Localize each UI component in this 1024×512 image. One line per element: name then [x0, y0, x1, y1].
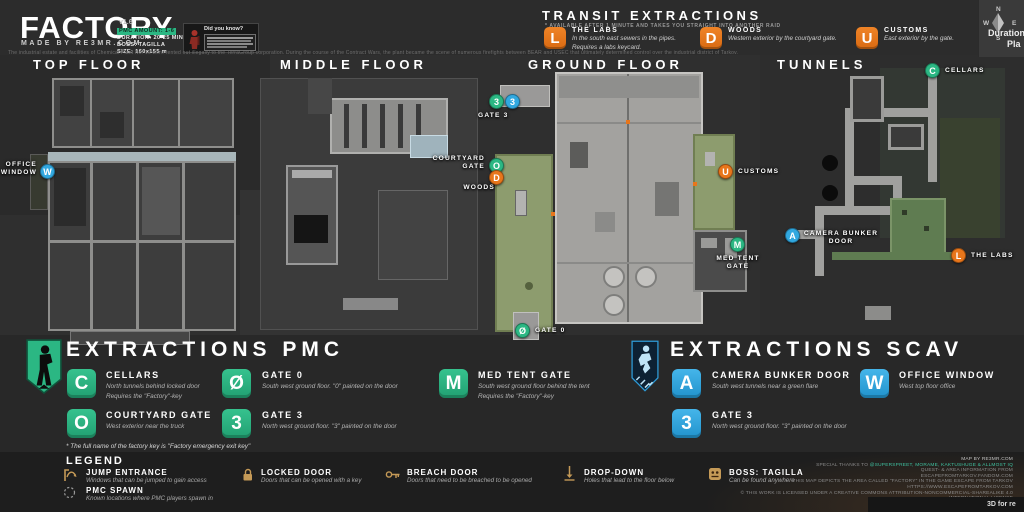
locked-door-icon [240, 467, 255, 482]
pmc-gate0-desc: South west ground floor. "0" painted on … [262, 382, 398, 392]
map-ground-floor [495, 62, 765, 334]
map-room [142, 167, 180, 235]
pmc-med-tent-desc: South west ground floor behind the tent … [478, 382, 590, 402]
marker-cellars-label: CELLARS [945, 67, 985, 75]
map-detail [924, 226, 929, 231]
map-description: The industrial estate and facilities of … [8, 50, 1018, 56]
map-wall [343, 298, 398, 310]
scav-emblem [631, 340, 659, 392]
map-room [54, 168, 86, 226]
drop-down-icon [563, 466, 576, 481]
transit-item-labs: L [544, 27, 566, 49]
corner-cutoff-text: 3D for re [987, 501, 1016, 508]
pmc-cellars-desc: North tunnels behind locked door Require… [106, 382, 200, 402]
pmc-cellars-name: CELLARS [106, 370, 160, 380]
pmc-courtyard-desc: West exterior near the truck [106, 422, 184, 432]
map-tunnel [815, 206, 902, 215]
breach-door-icon [385, 468, 401, 481]
map-door-marker [551, 212, 555, 216]
marker-med-tent-gate[interactable]: M [730, 237, 745, 252]
stat-pmc-amount: PMC AMOUNT: 1-6 [117, 28, 176, 35]
map-corridor [48, 152, 236, 161]
transit-item-customs: U [856, 27, 878, 49]
transit-extractions-title: TRANSIT EXTRACTIONS [542, 8, 762, 23]
transit-customs-desc: East exterior by the gate. [884, 35, 954, 44]
marker-woods-transit[interactable]: D [489, 170, 504, 185]
extractions-scav-title: EXTRACTIONS SCAV [670, 338, 963, 362]
did-you-know-box[interactable]: Did you know? [183, 23, 259, 53]
map-west-courtyard [495, 154, 553, 332]
map-tank [603, 294, 625, 316]
labs-transit-icon: L [544, 27, 566, 49]
marker-camera-bunker-label: CAMERA BUNKER DOOR [803, 230, 879, 246]
map-tank-dark [822, 155, 838, 171]
did-you-know-body [204, 34, 256, 51]
extractions-pmc-title: EXTRACTIONS PMC [66, 338, 344, 362]
pmc-gate0-name: GATE 0 [262, 370, 303, 380]
map-room [398, 104, 403, 148]
map-room [344, 104, 349, 148]
map-door-marker [626, 120, 630, 124]
scav-camera-bunker-desc: South west tunnels near a green flare [712, 382, 818, 392]
map-room [378, 190, 448, 280]
map-wall [136, 161, 139, 331]
scav-office-window-icon: W [860, 369, 889, 398]
map-middle-floor [248, 70, 493, 338]
map-door-marker [693, 182, 697, 186]
map-detail [525, 282, 533, 290]
map-room [655, 182, 679, 216]
credit-thanks-names: @SUPERSPREET, MORAME, KAKTUSHUGE & ALLMO… [870, 463, 1013, 468]
scav-gate3-name: GATE 3 [712, 410, 753, 420]
edge-text-duration: Duration [988, 28, 1024, 38]
marker-camera-bunker-door[interactable]: A [785, 228, 800, 243]
marker-gate0-label: GATE 0 [535, 327, 566, 335]
legend-spawn-name: PMC SPAWN [86, 486, 144, 495]
pmc-spawn-icon [63, 486, 76, 499]
map-tunnel [845, 108, 854, 213]
transit-woods-desc: Western exterior by the courtyard gate. [728, 35, 837, 44]
map-wall [90, 78, 92, 148]
marker-cellars[interactable]: C [925, 63, 940, 78]
marker-gate3-scav[interactable]: 3 [505, 94, 520, 109]
map-tank [635, 266, 657, 288]
marker-gate3-pmc[interactable]: 3 [489, 94, 504, 109]
pmc-courtyard-name: COURTYARD GATE [106, 410, 212, 420]
scav-camera-bunker-name: CAMERA BUNKER DOOR [712, 370, 850, 380]
pmc-med-tent-icon: M [439, 369, 468, 398]
map-detail [701, 238, 717, 248]
map-room [308, 78, 332, 114]
legend-locked-desc: Doors that can be opened with a key [261, 477, 361, 484]
marker-office-window-label: OFFICE WINDOW [0, 161, 37, 177]
legend-spawn-desc: Known locations where PMC players spawn … [86, 495, 213, 502]
map-wall [557, 262, 701, 264]
marker-gate0[interactable]: Ø [515, 323, 530, 338]
legend-jump-name: JUMP ENTRANCE [86, 468, 168, 477]
pmc-med-tent-name: MED TENT GATE [478, 370, 572, 380]
map-room [595, 212, 615, 232]
transit-woods-name: WOODS [728, 27, 762, 34]
pmc-footnote: * The full name of the factory key is "F… [66, 443, 250, 450]
map-room [60, 86, 84, 116]
map-room [570, 142, 588, 168]
jump-entrance-icon [63, 468, 78, 482]
credits-block: MAP BY RE3MR.COM SPECIAL THANKS TO @SUPE… [713, 457, 1013, 502]
pmc-emblem [26, 339, 62, 394]
pmc-cellars-icon: C [67, 369, 96, 398]
map-top-floor [30, 72, 240, 334]
map-room [850, 76, 884, 122]
scav-office-window-desc: West top floor office [899, 382, 955, 392]
pmc-gate0-icon: Ø [222, 369, 251, 398]
transit-labs-name: THE LABS [572, 27, 618, 34]
tagilla-figure-icon [188, 29, 201, 50]
map-wall [627, 74, 629, 322]
map-east-courtyard [693, 134, 735, 230]
map-tunnel [928, 66, 937, 182]
pmc-gate3-name: GATE 3 [262, 410, 303, 420]
map-room [294, 215, 328, 243]
transit-item-woods: D [700, 27, 722, 49]
map-room [865, 306, 891, 320]
map-wall [132, 78, 134, 148]
pmc-courtyard-icon: O [67, 409, 96, 438]
map-wall [178, 78, 180, 148]
map-tank [603, 266, 625, 288]
map-detail [902, 210, 907, 215]
map-backdrop [940, 118, 1000, 238]
scav-gate3-desc: North west ground floor. "3" painted on … [712, 422, 847, 432]
marker-labs-label: THE LABS [971, 252, 1014, 260]
marker-labs-transit[interactable]: L [951, 248, 966, 263]
scav-camera-bunker-icon: A [672, 369, 701, 398]
marker-gate3-label: GATE 3 [478, 112, 532, 120]
factory-map-infographic: FACTORY v1.6 MADE BY RE3MR.COM PMC AMOUN… [0, 0, 1024, 512]
legend-dropdown-desc: Holes that lead to the floor below [584, 477, 674, 484]
legend-jump-desc: Windows that can be jumped to gain acces… [86, 477, 207, 484]
version-label: v1.6 [119, 19, 133, 26]
map-room [888, 124, 924, 150]
map-wall [182, 161, 185, 331]
compass-north: N [996, 6, 1001, 13]
pmc-gate3-icon: 3 [222, 409, 251, 438]
scav-gate3-icon: 3 [672, 409, 701, 438]
compass-west: W [983, 20, 989, 27]
map-room [100, 112, 124, 138]
map-sewer-room [890, 198, 946, 258]
map-room-row [559, 76, 699, 98]
marker-customs-transit[interactable]: U [718, 164, 733, 179]
map-tunnels [790, 58, 1015, 333]
marker-office-window[interactable]: W [40, 164, 55, 179]
map-room [362, 104, 367, 148]
map-detail [705, 152, 715, 166]
floor-label-top: TOP FLOOR [33, 57, 144, 72]
map-truck [515, 190, 527, 216]
legend-breach-desc: Doors that need to be breached to be ope… [407, 477, 532, 484]
marker-customs-label: CUSTOMS [738, 168, 779, 176]
marker-med-tent-label: MED TENT GATE [708, 255, 768, 271]
marker-woods-label: WOODS [445, 184, 495, 192]
woods-transit-icon: D [700, 27, 722, 49]
transit-customs-name: CUSTOMS [884, 27, 929, 34]
edge-text-pla: Pla [1007, 39, 1021, 49]
map-room [380, 104, 385, 148]
map-wall [292, 170, 332, 178]
legend-dropdown-name: DROP-DOWN [584, 468, 644, 477]
map-sewer-pipe [832, 252, 952, 260]
did-you-know-title: Did you know? [204, 26, 243, 32]
customs-transit-icon: U [856, 27, 878, 49]
map-tank-dark [822, 185, 838, 201]
map-main-hall [555, 72, 703, 324]
legend-breach-name: BREACH DOOR [407, 468, 478, 477]
marker-courtyard-gate-label: COURTYARD GATE [430, 155, 485, 171]
legend-title: LEGEND [66, 455, 124, 467]
compass-east: E [1012, 20, 1016, 27]
legend-locked-name: LOCKED DOOR [261, 468, 332, 477]
pmc-gate3-desc: North west ground floor. "3" painted on … [262, 422, 397, 432]
map-wall [90, 161, 93, 331]
map-wall [48, 240, 236, 243]
scav-office-window-name: OFFICE WINDOW [899, 370, 995, 380]
